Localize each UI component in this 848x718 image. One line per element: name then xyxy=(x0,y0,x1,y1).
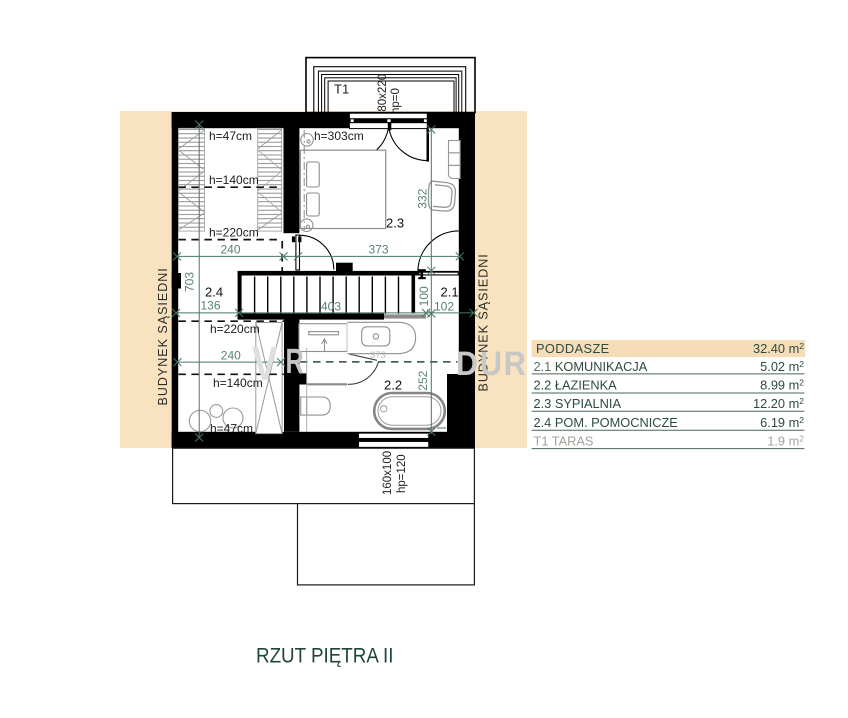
svg-text:hp=120: hp=120 xyxy=(396,454,408,493)
svg-text:T1 TARAS: T1 TARAS xyxy=(534,433,594,448)
svg-text:h=303cm: h=303cm xyxy=(314,129,364,143)
svg-text:2.3: 2.3 xyxy=(386,216,404,231)
svg-text:8.99 m2: 8.99 m2 xyxy=(760,378,804,393)
svg-text:5.02 m2: 5.02 m2 xyxy=(760,359,804,374)
svg-text:160x100: 160x100 xyxy=(382,451,394,495)
svg-text:hp=0: hp=0 xyxy=(390,88,402,114)
svg-text:h=47cm: h=47cm xyxy=(210,422,253,436)
svg-text:2.3 SYPIALNIA: 2.3 SYPIALNIA xyxy=(534,396,622,411)
svg-text:403: 403 xyxy=(321,300,341,314)
svg-text:h=47cm: h=47cm xyxy=(209,129,252,143)
svg-text:V: V xyxy=(252,338,278,391)
svg-text:252: 252 xyxy=(416,370,430,390)
svg-text:373: 373 xyxy=(370,350,386,361)
svg-text:T1: T1 xyxy=(334,82,349,97)
svg-text:2.4 POM. POMOCNICZE: 2.4 POM. POMOCNICZE xyxy=(534,415,678,430)
svg-text:RZUT PIĘTRA II: RZUT PIĘTRA II xyxy=(256,645,394,668)
svg-text:703: 703 xyxy=(183,272,197,292)
svg-text:1.9 m2: 1.9 m2 xyxy=(767,433,804,448)
svg-text:2.1: 2.1 xyxy=(441,285,459,300)
svg-text:240: 240 xyxy=(221,349,241,363)
svg-text:136: 136 xyxy=(200,299,220,313)
svg-text:180x220: 180x220 xyxy=(377,74,389,118)
svg-text:100: 100 xyxy=(417,286,431,306)
svg-text:R: R xyxy=(285,342,303,381)
svg-text:2.2: 2.2 xyxy=(384,378,402,393)
svg-text:h=140cm: h=140cm xyxy=(209,173,259,187)
svg-text:PODDASZE: PODDASZE xyxy=(536,341,610,356)
svg-text:102: 102 xyxy=(434,300,454,314)
svg-text:332: 332 xyxy=(415,188,429,208)
svg-text:BUDYNEK SĄSIEDNI: BUDYNEK SĄSIEDNI xyxy=(156,267,170,405)
svg-text:h=220cm: h=220cm xyxy=(210,322,260,336)
svg-text:h=220cm: h=220cm xyxy=(209,226,259,240)
svg-text:373: 373 xyxy=(368,243,388,257)
svg-text:2.2 ŁAZIENKA: 2.2 ŁAZIENKA xyxy=(534,378,618,393)
svg-text:2.4: 2.4 xyxy=(205,285,223,300)
svg-text:32.40 m2: 32.40 m2 xyxy=(753,341,804,356)
svg-text:6.19 m2: 6.19 m2 xyxy=(760,415,804,430)
svg-text:12.20 m2: 12.20 m2 xyxy=(753,396,804,411)
svg-text:2.1 KOMUNIKACJA: 2.1 KOMUNIKACJA xyxy=(534,359,648,374)
svg-text:240: 240 xyxy=(220,243,240,257)
svg-text:DUR: DUR xyxy=(456,345,528,383)
